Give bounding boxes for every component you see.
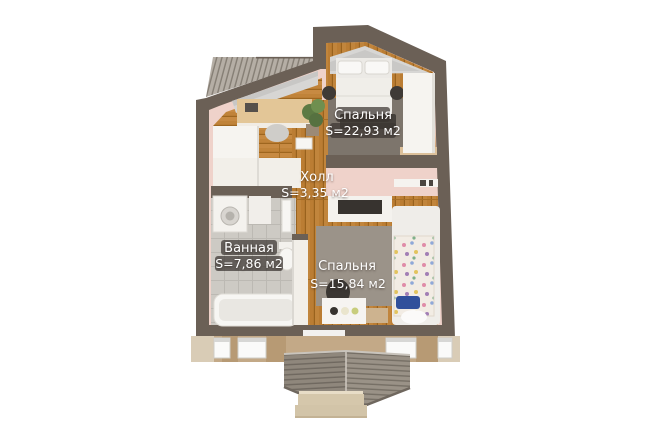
- room-area: S=7,86 м2: [215, 256, 283, 271]
- room-area: S=15,84 м2: [310, 276, 386, 291]
- wall-face-edge: [292, 240, 294, 325]
- pouf: [366, 308, 388, 323]
- wall-bedrooms: [326, 155, 442, 168]
- room-label-bathroom: Ванная S=7,86 м2: [215, 240, 283, 271]
- floor-plan-render: Спальня S=22,93 м2 Холл S=3,35 м2 Ванная…: [0, 0, 660, 440]
- vanity: [249, 196, 271, 224]
- chair: [265, 124, 289, 142]
- floor-plan-page: Спальня S=22,93 м2 Холл S=3,35 м2 Ванная…: [0, 0, 660, 440]
- wall-study-bedroom: [313, 27, 326, 69]
- step-shadow: [295, 416, 367, 418]
- closet-shade: [432, 73, 435, 153]
- facade-pier: [416, 336, 438, 362]
- washer-drum: [226, 212, 235, 221]
- pillow: [401, 310, 427, 324]
- nightstand-lamp: [322, 86, 336, 100]
- facade-corner: [191, 336, 214, 362]
- facade-pier: [266, 336, 286, 362]
- closet: [403, 73, 435, 153]
- table-item: [330, 307, 338, 315]
- room-name: Спальня: [334, 108, 392, 123]
- pillow: [338, 61, 362, 74]
- table-item: [341, 307, 349, 315]
- room-area: S=3,35 м2: [281, 185, 349, 200]
- blue-cushion: [396, 296, 420, 309]
- nightstand-lamp: [390, 86, 404, 100]
- facade-window: [438, 338, 452, 358]
- wall-face-white: [292, 240, 308, 325]
- door-bathroom: [282, 200, 291, 232]
- bathtub-basin: [219, 299, 293, 321]
- laptop: [245, 103, 258, 112]
- door-hall-top: [296, 138, 312, 149]
- facade-window: [238, 338, 266, 358]
- table-item: [352, 308, 359, 315]
- wardrobe-shade: [257, 126, 259, 188]
- pillow: [365, 61, 389, 74]
- room-area: S=22,93 м2: [325, 123, 401, 138]
- porch-steps: [295, 391, 367, 418]
- step-upper: [298, 394, 364, 405]
- room-label-bedroom-top: Спальня S=22,93 м2: [325, 107, 401, 138]
- wall-shelf: [394, 179, 438, 187]
- tv: [338, 200, 382, 214]
- room-name: Холл: [300, 170, 333, 185]
- room-name: Ванная: [224, 241, 274, 256]
- facade-window: [214, 338, 230, 358]
- step-edge: [299, 391, 363, 394]
- room-name: Спальня: [318, 259, 376, 274]
